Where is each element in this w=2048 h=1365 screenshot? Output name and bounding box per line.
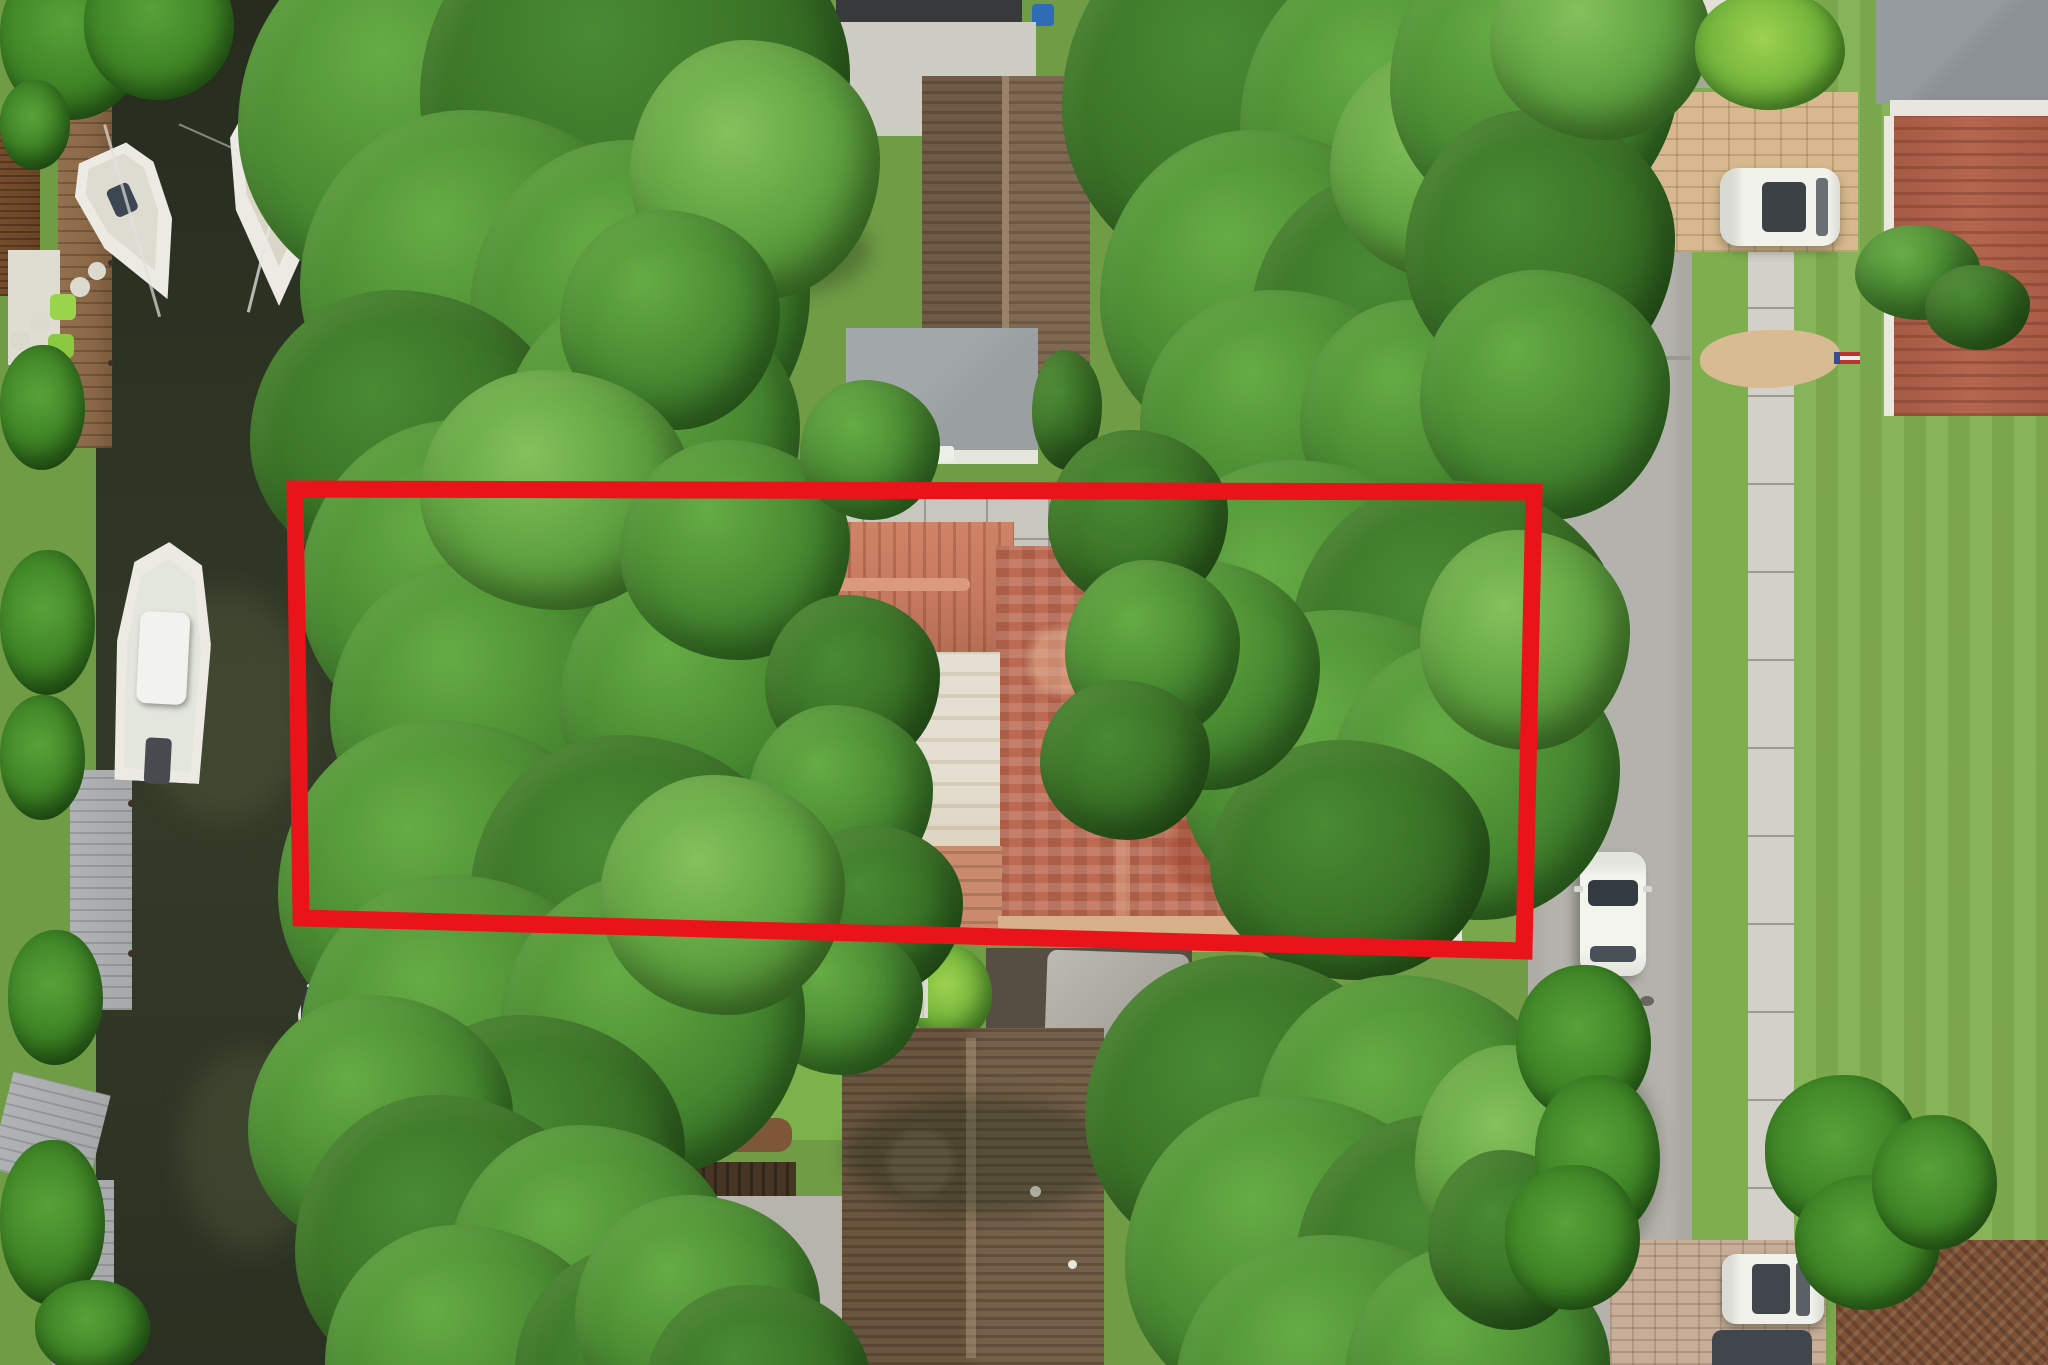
property-boundary	[295, 489, 1534, 951]
aerial-photo	[0, 0, 2048, 1365]
property-boundary-overlay	[0, 0, 2048, 1365]
